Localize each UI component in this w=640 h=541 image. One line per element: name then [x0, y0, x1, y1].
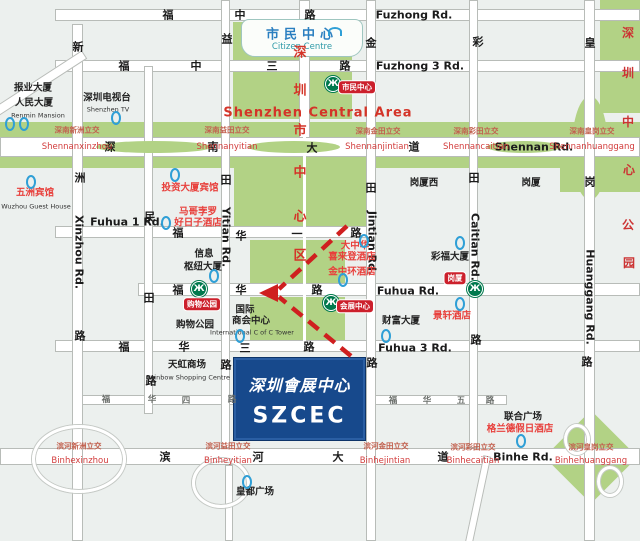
poi-marco-polo-hotel: 好日子酒店 — [174, 219, 222, 230]
road-char: 民 — [145, 212, 156, 223]
interchange-cn: 滨河皇岗立交 — [569, 443, 614, 451]
road-char: 金 — [366, 38, 377, 49]
road-char: 路 — [304, 342, 315, 353]
road-char: 路 — [75, 331, 86, 342]
central-park-char: 园 — [623, 257, 635, 269]
building-icon — [455, 297, 465, 311]
building-icon — [235, 329, 245, 343]
road-char: 路 — [582, 357, 593, 368]
road-char: 福 — [102, 396, 111, 405]
road-char: 田 — [221, 175, 232, 186]
poi-great-china-sheraton: 喜来登酒店 — [328, 253, 376, 264]
station-badge-shimin: 市民中心 — [338, 80, 376, 94]
interchange-en: Binhehuanggang — [555, 457, 627, 466]
interchange-en: Binhejintian — [360, 457, 411, 466]
interchange-en: Shennanxinzhou — [42, 143, 113, 152]
central-district-char: 圳 — [293, 85, 306, 98]
road-char: 福 — [173, 285, 184, 296]
road-char: 路 — [228, 396, 237, 405]
interchange-cn: 深南皇岗立交 — [570, 127, 615, 135]
central-district-char: 深 — [293, 47, 306, 60]
central-park-char: 心 — [623, 164, 635, 176]
metro-icon: Ж — [467, 281, 483, 297]
interchange-loop — [597, 466, 623, 497]
road-char: 益 — [222, 34, 233, 45]
interchange-en: Shennanjintian — [345, 143, 409, 152]
road-char: 新 — [73, 42, 84, 53]
building-icon — [161, 216, 171, 230]
road-char: 滨 — [160, 452, 171, 463]
shennan-median — [248, 141, 340, 153]
poi-wuzhou-hotel-en: Wuzhou Guest House — [1, 203, 71, 210]
building-icon — [26, 175, 36, 189]
poi-shenzhen-tv: 深圳电视台 — [83, 94, 131, 105]
interchange-en: Shennanhuanggang — [549, 143, 635, 152]
building-icon — [381, 329, 391, 343]
central-park-char: 深 — [622, 27, 634, 39]
interchange-cn: 深南彩田立交 — [454, 127, 499, 135]
interchange-en: Binhecaitian — [447, 457, 500, 466]
poi-rainbow-store-en: Rainbow Shopping Centre — [146, 374, 230, 381]
road-mintian — [144, 66, 153, 414]
interchange-cn: 滨河新洲立交 — [57, 442, 102, 450]
central-district-char: 市 — [293, 125, 306, 138]
road-char: 福 — [389, 397, 398, 406]
building-icon — [455, 236, 465, 250]
interchange-en: Shennancaitian — [443, 143, 509, 152]
road-char: 福 — [119, 61, 130, 72]
citizen-centre-label: 市民中心 — [266, 24, 338, 43]
road-char: 岗 — [585, 177, 596, 188]
building-icon — [359, 234, 369, 248]
road-char: 路 — [486, 397, 495, 406]
shenzhen-szcec-map: 市民中心 Citizen Centre 深圳會展中心 SZCEC 福 中 路 F… — [0, 0, 640, 541]
road-char: 路 — [367, 358, 378, 369]
interchange-cn: 滨河金田立交 — [364, 442, 409, 450]
poi-huangdu-plaza: 皇都广场 — [236, 488, 274, 499]
interchange-en: Shennanyitian — [196, 143, 257, 152]
poi-jingxuan-hotel: 景轩酒店 — [433, 312, 471, 323]
poi-icc-tower-en: International C of C Tower — [210, 329, 294, 336]
road-char: 彩 — [473, 37, 484, 48]
poi-shenzhen-tv-en: Shenzhen TV — [87, 106, 130, 113]
district-gangxia: 岗厦 — [521, 179, 540, 190]
poi-renmin-mansion: 人民大厦 — [15, 99, 53, 110]
poi-caifu-building: 彩福大厦 — [431, 253, 469, 264]
interchange-en: Binhexinzhou — [51, 457, 108, 466]
road-caitian-south — [465, 455, 492, 541]
station-badge-gangxia: 岗厦 — [444, 271, 467, 285]
road-char: 河 — [253, 452, 264, 463]
building-icon — [338, 273, 348, 287]
interchange-cn: 滨河彩田立交 — [451, 443, 496, 451]
district-gangxia-west: 岗厦西 — [410, 179, 439, 190]
road-char: 华 — [236, 285, 247, 296]
szcec-title-cn: 深圳會展中心 — [248, 372, 350, 396]
road-label-binhe: Binhe Rd. — [493, 452, 553, 463]
road-char: 道 — [409, 142, 420, 153]
road-char: 大 — [307, 143, 318, 154]
road-char: 三 — [267, 61, 278, 72]
road-char: 路 — [312, 285, 323, 296]
building-icon — [19, 117, 29, 131]
road-char: 中 — [191, 61, 202, 72]
poi-shopping-park: 购物公园 — [176, 321, 214, 332]
road-char: 路 — [305, 10, 316, 21]
poi-golden-central-hotel: 金中环酒店 — [328, 268, 376, 279]
road-label-xinzhou: Xinzhou Rd. — [74, 215, 85, 289]
road-char: 洲 — [75, 173, 86, 184]
szcec-title-en: SZCEC — [252, 404, 346, 429]
poi-info-hub-building: 信息 — [194, 250, 213, 261]
road-label-fuzhong3: Fuzhong 3 Rd. — [376, 61, 464, 72]
station-badge-gouwu: 购物公园 — [183, 297, 221, 311]
interchange-cn: 深南新洲立交 — [55, 126, 100, 134]
road-label-yitian: Yitian Rd. — [221, 207, 232, 267]
road-char: 大 — [333, 452, 344, 463]
road-char: 华 — [179, 342, 190, 353]
szcec-box: 深圳會展中心 SZCEC — [233, 357, 366, 441]
road-char: 华 — [148, 396, 157, 405]
poi-rainbow-store: 天虹商场 — [168, 361, 206, 372]
road-char: 田 — [144, 293, 155, 304]
building-icon — [516, 434, 526, 448]
central-district-char: 心 — [293, 211, 306, 224]
road-label-fuzhong: Fuzhong Rd. — [376, 10, 453, 21]
road-char: 华 — [236, 231, 247, 242]
road-char: 福 — [119, 342, 130, 353]
road-label-caitian: Caitian Rd. — [470, 213, 481, 281]
building-icon — [209, 269, 219, 283]
road-char: 中 — [235, 10, 246, 21]
road-fuhua3 — [55, 340, 640, 352]
central-park-char: 圳 — [622, 67, 634, 79]
road-char: 皇 — [585, 38, 596, 49]
road-char: 路 — [340, 61, 351, 72]
road-label-huanggang: Huanggang Rd. — [585, 249, 596, 345]
interchange-cn: 深南益田立交 — [205, 126, 250, 134]
central-area-label: Shenzhen Central Area — [223, 106, 412, 121]
building-icon — [242, 475, 252, 489]
central-park-char: 公 — [622, 219, 634, 231]
road-char: 福 — [163, 10, 174, 21]
building-icon — [170, 168, 180, 182]
road-char: 一 — [292, 229, 303, 240]
road-char: 华 — [423, 397, 432, 406]
central-district-char: 区 — [293, 250, 306, 263]
road-char: 路 — [221, 360, 232, 371]
poi-baoye-building: 报业大厦 — [14, 84, 52, 95]
interchange-cn: 深南金田立交 — [356, 127, 401, 135]
road-label-fuhua3: Fuhua 3 Rd. — [378, 343, 452, 354]
poi-wuzhou-hotel: 五洲宾馆 — [16, 189, 54, 200]
road-label-fuhua: Fuhua Rd. — [377, 286, 439, 297]
road-char: 田 — [366, 183, 377, 194]
road-char: 田 — [469, 173, 480, 184]
metro-icon: Ж — [191, 281, 207, 297]
station-badge-huizhan: 会展中心 — [336, 299, 374, 313]
road-char: 四 — [182, 397, 191, 406]
building-icon — [111, 111, 121, 125]
interchange-en: Binheyitian — [204, 457, 252, 466]
poi-touzi-hotel: 投资大厦宾馆 — [161, 184, 218, 195]
poi-fortune-building: 财富大厦 — [382, 317, 420, 328]
poi-icc-tower: 商会中心 — [232, 317, 270, 328]
road-char: 路 — [471, 335, 482, 346]
road-char: 三 — [240, 343, 251, 354]
central-park-char: 中 — [622, 116, 634, 128]
road-char: 五 — [457, 397, 466, 406]
building-icon — [5, 117, 15, 131]
interchange-cn: 滨河益田立交 — [206, 442, 251, 450]
central-district-char: 中 — [293, 167, 306, 180]
poi-united-plaza: 联合广场 — [504, 413, 542, 424]
